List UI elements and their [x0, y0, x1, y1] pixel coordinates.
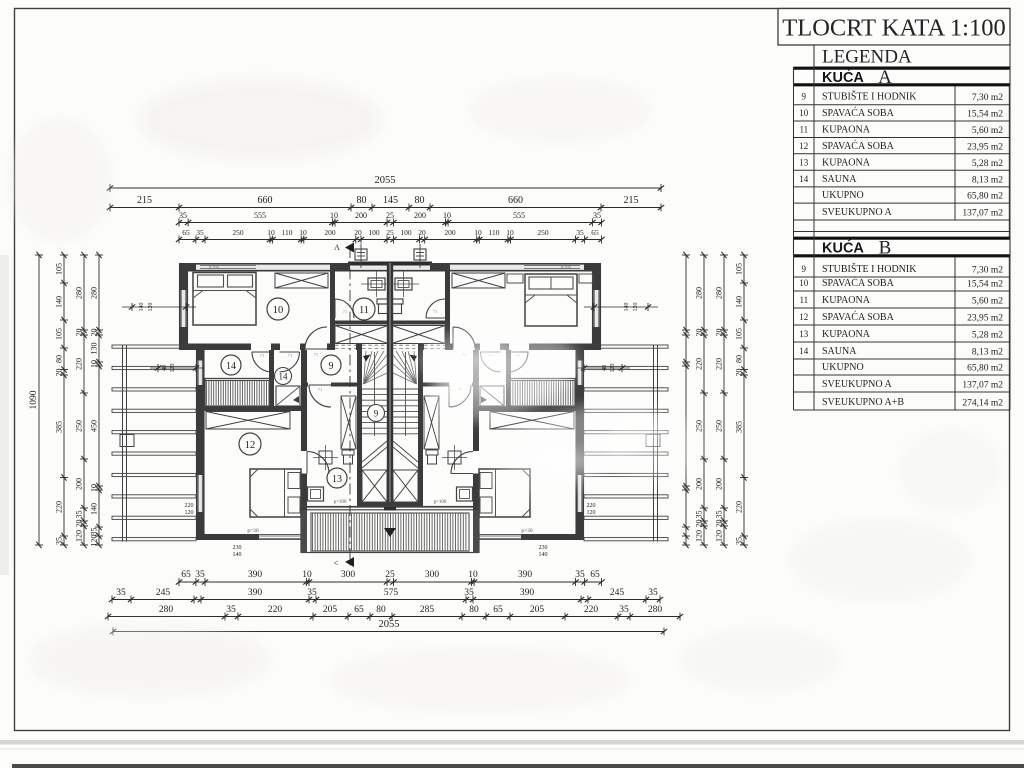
svg-text:215: 215 [624, 195, 639, 206]
svg-text:280: 280 [715, 287, 724, 299]
svg-text:STUBIŠTE I HODNIK: STUBIŠTE I HODNIK [822, 263, 917, 275]
svg-text:SAUNA: SAUNA [822, 346, 857, 357]
svg-text:11: 11 [799, 295, 808, 305]
svg-text:20: 20 [695, 329, 704, 337]
svg-text:35: 35 [307, 588, 317, 598]
svg-text:40: 40 [162, 365, 168, 371]
svg-text:274,14 m2: 274,14 m2 [962, 399, 1003, 409]
svg-text:200: 200 [355, 211, 367, 220]
svg-text:12: 12 [799, 141, 808, 151]
svg-text:300: 300 [341, 570, 356, 580]
svg-text:140: 140 [139, 303, 145, 312]
svg-text:1090: 1090 [29, 390, 39, 409]
svg-text:250: 250 [75, 420, 84, 432]
svg-text:SAUNA: SAUNA [822, 174, 857, 185]
svg-text:660: 660 [508, 195, 523, 206]
svg-text:20: 20 [418, 228, 426, 237]
svg-text:9: 9 [374, 409, 379, 419]
svg-text:25: 25 [385, 570, 395, 580]
svg-text:220: 220 [715, 358, 724, 370]
svg-text:SVEUKUPNO A: SVEUKUPNO A [822, 379, 893, 390]
svg-text:65: 65 [182, 228, 190, 237]
svg-text:200: 200 [444, 228, 456, 237]
svg-text:575: 575 [384, 588, 399, 598]
svg-text:65: 65 [181, 570, 191, 580]
svg-text:12: 12 [799, 312, 808, 322]
svg-text:35: 35 [619, 605, 629, 615]
svg-text:14: 14 [799, 174, 809, 184]
svg-text:450: 450 [90, 420, 99, 432]
svg-text:23,95 m2: 23,95 m2 [967, 314, 1003, 324]
svg-text:35: 35 [575, 570, 585, 580]
svg-text:100: 100 [400, 228, 412, 237]
svg-text:2055: 2055 [375, 175, 396, 186]
svg-text:10: 10 [443, 211, 451, 220]
svg-text:SPAVAĆA SOBA: SPAVAĆA SOBA [822, 277, 895, 289]
svg-text:71: 71 [343, 309, 348, 314]
svg-text:385: 385 [735, 421, 744, 433]
svg-text:390: 390 [248, 588, 263, 598]
svg-text:250: 250 [537, 228, 549, 237]
svg-text:120: 120 [610, 364, 616, 373]
svg-text:p=80: p=80 [209, 266, 220, 271]
svg-text:STUBIŠTE I HODNIK: STUBIŠTE I HODNIK [822, 91, 917, 103]
svg-text:35: 35 [196, 228, 204, 237]
svg-text:120: 120 [715, 530, 724, 542]
svg-text:200: 200 [324, 228, 336, 237]
svg-text:p=30: p=30 [521, 528, 533, 534]
svg-text:385: 385 [55, 421, 64, 433]
svg-text:23,95 m2: 23,95 m2 [967, 142, 1003, 152]
svg-text:p=30: p=30 [247, 528, 259, 534]
svg-text:120: 120 [75, 530, 84, 542]
svg-text:390: 390 [248, 570, 263, 580]
svg-text:11: 11 [799, 125, 808, 135]
svg-text:230: 230 [233, 545, 242, 551]
svg-text:140: 140 [735, 296, 744, 308]
svg-text:71: 71 [433, 309, 438, 314]
svg-text:15,54 m2: 15,54 m2 [967, 110, 1003, 120]
svg-text:10: 10 [299, 228, 307, 237]
svg-text:280: 280 [648, 605, 663, 615]
svg-text:<: < [333, 558, 338, 568]
svg-text:65,80 m2: 65,80 m2 [967, 364, 1003, 374]
svg-text:137,07 m2: 137,07 m2 [962, 381, 1003, 391]
svg-text:20: 20 [75, 520, 84, 528]
svg-text:p=80: p=80 [561, 266, 572, 271]
svg-text:35: 35 [648, 588, 658, 598]
svg-text:280: 280 [90, 287, 99, 299]
svg-text:KUPAONA: KUPAONA [822, 125, 871, 136]
svg-text:TLOCRT KATA 1:100: TLOCRT KATA 1:100 [782, 15, 1005, 42]
svg-text:65: 65 [493, 605, 503, 615]
svg-text:120: 120 [587, 510, 596, 516]
svg-text:105: 105 [735, 328, 744, 340]
svg-text:20: 20 [75, 329, 84, 337]
svg-text:220: 220 [584, 605, 599, 615]
svg-text:140: 140 [55, 296, 64, 308]
svg-text:25: 25 [386, 211, 394, 220]
svg-text:280: 280 [75, 287, 84, 299]
svg-text:20: 20 [90, 329, 99, 337]
svg-text:120: 120 [695, 530, 704, 542]
svg-text:10: 10 [506, 228, 514, 237]
svg-text:200: 200 [414, 211, 426, 220]
svg-text:10: 10 [302, 570, 312, 580]
svg-text:35: 35 [715, 511, 724, 519]
svg-text:KUĆA: KUĆA [822, 239, 864, 257]
svg-text:2055: 2055 [379, 619, 400, 630]
svg-text:80: 80 [357, 195, 367, 206]
svg-text:35: 35 [464, 588, 474, 598]
svg-text:5,60 m2: 5,60 m2 [972, 297, 1003, 307]
svg-text:10: 10 [468, 570, 478, 580]
svg-text:105: 105 [55, 263, 64, 275]
svg-text:250: 250 [232, 228, 244, 237]
svg-text:250: 250 [715, 420, 724, 432]
svg-text:120: 120 [148, 303, 154, 312]
svg-text:SVEUKUPNO A: SVEUKUPNO A [822, 207, 893, 218]
svg-text:20: 20 [695, 520, 704, 528]
svg-text:9: 9 [802, 92, 807, 102]
svg-text:KUPAONA: KUPAONA [822, 329, 871, 340]
svg-text:20: 20 [55, 369, 64, 377]
svg-text:220: 220 [75, 358, 84, 370]
svg-text:65: 65 [354, 605, 364, 615]
svg-text:13: 13 [799, 329, 809, 339]
svg-text:10: 10 [90, 360, 99, 368]
svg-text:10: 10 [90, 484, 99, 492]
svg-text:35: 35 [576, 228, 584, 237]
svg-text:200: 200 [695, 478, 704, 490]
svg-text:215: 215 [137, 195, 152, 206]
svg-text:14: 14 [226, 361, 236, 372]
svg-text:20: 20 [715, 329, 724, 337]
svg-text:20: 20 [735, 369, 744, 377]
svg-text:SPAVAĆA SOBA: SPAVAĆA SOBA [822, 311, 895, 323]
svg-text:35: 35 [55, 537, 64, 545]
svg-text:555: 555 [513, 211, 525, 220]
svg-text:140: 140 [624, 303, 630, 312]
svg-text:LEGENDA: LEGENDA [822, 47, 912, 68]
svg-text:280: 280 [159, 605, 174, 615]
svg-text:35: 35 [75, 511, 84, 519]
svg-text:11: 11 [359, 305, 369, 316]
svg-text:130: 130 [90, 343, 99, 355]
svg-text:KUĆA: KUĆA [822, 68, 864, 86]
svg-text:SVEUKUPNO A+B: SVEUKUPNO A+B [822, 397, 904, 408]
svg-text:145: 145 [383, 195, 398, 206]
svg-text:12: 12 [245, 440, 256, 451]
svg-text:80: 80 [469, 605, 479, 615]
svg-text:71: 71 [288, 353, 293, 358]
svg-text:B: B [879, 238, 892, 259]
svg-text:p=100: p=100 [434, 500, 447, 505]
svg-text:220: 220 [55, 501, 64, 513]
svg-text:KUPAONA: KUPAONA [822, 157, 871, 168]
svg-text:35: 35 [593, 211, 601, 220]
svg-text:80: 80 [376, 605, 386, 615]
svg-text:10: 10 [474, 228, 482, 237]
svg-text:120: 120 [185, 510, 194, 516]
svg-text:300: 300 [425, 570, 440, 580]
svg-text:A: A [334, 243, 340, 252]
svg-text:25: 25 [386, 228, 394, 237]
svg-text:7,30 m2: 7,30 m2 [972, 93, 1003, 103]
svg-text:35: 35 [179, 211, 187, 220]
svg-text:71: 71 [314, 352, 319, 357]
svg-text:20: 20 [354, 228, 362, 237]
svg-text:8,13 m2: 8,13 m2 [972, 175, 1003, 185]
svg-text:9: 9 [802, 264, 807, 274]
svg-text:205: 205 [323, 605, 338, 615]
svg-text:8,13 m2: 8,13 m2 [972, 348, 1003, 358]
svg-text:65: 65 [591, 228, 599, 237]
svg-text:15,54 m2: 15,54 m2 [967, 280, 1003, 290]
svg-text:35: 35 [90, 528, 99, 536]
svg-text:120: 120 [90, 535, 99, 547]
svg-text:80: 80 [415, 195, 425, 206]
svg-text:205: 205 [530, 605, 545, 615]
svg-text:p=100: p=100 [334, 500, 347, 505]
svg-text:390: 390 [518, 570, 533, 580]
svg-text:10: 10 [799, 108, 809, 118]
svg-text:A: A [878, 67, 892, 88]
svg-text:280: 280 [695, 287, 704, 299]
svg-text:35: 35 [116, 588, 126, 598]
svg-text:245: 245 [610, 588, 625, 598]
svg-text:UKUPNO: UKUPNO [822, 190, 864, 201]
svg-text:10: 10 [267, 228, 275, 237]
svg-text:200: 200 [75, 478, 84, 490]
svg-text:35: 35 [226, 605, 236, 615]
svg-text:140: 140 [90, 503, 99, 515]
svg-text:230: 230 [539, 545, 548, 551]
svg-text:71: 71 [260, 353, 265, 358]
svg-text:100: 100 [368, 228, 380, 237]
svg-text:250: 250 [695, 420, 704, 432]
svg-text:35: 35 [195, 570, 205, 580]
svg-text:14: 14 [279, 372, 289, 382]
svg-text:220: 220 [695, 358, 704, 370]
svg-text:80: 80 [55, 355, 64, 363]
svg-text:9: 9 [329, 361, 334, 372]
svg-text:35: 35 [735, 537, 744, 545]
svg-text:140: 140 [539, 552, 548, 558]
svg-text:SPAVAĆA SOBA: SPAVAĆA SOBA [822, 107, 895, 119]
svg-text:105: 105 [735, 263, 744, 275]
svg-text:14: 14 [799, 346, 809, 356]
svg-text:245: 245 [156, 588, 171, 598]
svg-text:220: 220 [587, 503, 596, 509]
svg-text:120: 120 [633, 303, 639, 312]
svg-text:10: 10 [273, 305, 284, 316]
svg-text:35: 35 [695, 511, 704, 519]
svg-text:13: 13 [799, 157, 809, 167]
svg-text:660: 660 [258, 195, 273, 206]
svg-text:110: 110 [282, 228, 293, 237]
svg-text:220: 220 [185, 503, 194, 509]
svg-text:13: 13 [332, 474, 342, 485]
svg-text:110: 110 [489, 228, 500, 237]
svg-text:555: 555 [254, 211, 266, 220]
svg-text:5,28 m2: 5,28 m2 [972, 331, 1003, 341]
svg-text:7,30 m2: 7,30 m2 [972, 266, 1003, 276]
svg-text:SPAVAĆA SOBA: SPAVAĆA SOBA [822, 140, 895, 152]
svg-text:10: 10 [799, 278, 809, 288]
svg-text:5,28 m2: 5,28 m2 [972, 159, 1003, 169]
svg-text:KUPAONA: KUPAONA [822, 295, 871, 306]
svg-text:120: 120 [170, 364, 176, 373]
svg-text:220: 220 [268, 605, 283, 615]
svg-text:20: 20 [715, 520, 724, 528]
svg-text:10: 10 [330, 211, 338, 220]
svg-text:65,80 m2: 65,80 m2 [967, 192, 1003, 202]
svg-text:80: 80 [735, 355, 744, 363]
svg-text:5,60 m2: 5,60 m2 [972, 126, 1003, 136]
svg-text:220: 220 [735, 501, 744, 513]
svg-text:71: 71 [318, 387, 323, 392]
svg-text:390: 390 [520, 588, 535, 598]
svg-text:200: 200 [715, 478, 724, 490]
svg-text:65: 65 [590, 570, 600, 580]
svg-text:285: 285 [420, 605, 435, 615]
svg-text:137,07 m2: 137,07 m2 [962, 209, 1003, 219]
svg-text:40: 40 [602, 365, 608, 371]
svg-text:UKUPNO: UKUPNO [822, 362, 864, 373]
svg-text:140: 140 [233, 552, 242, 558]
svg-text:105: 105 [55, 328, 64, 340]
